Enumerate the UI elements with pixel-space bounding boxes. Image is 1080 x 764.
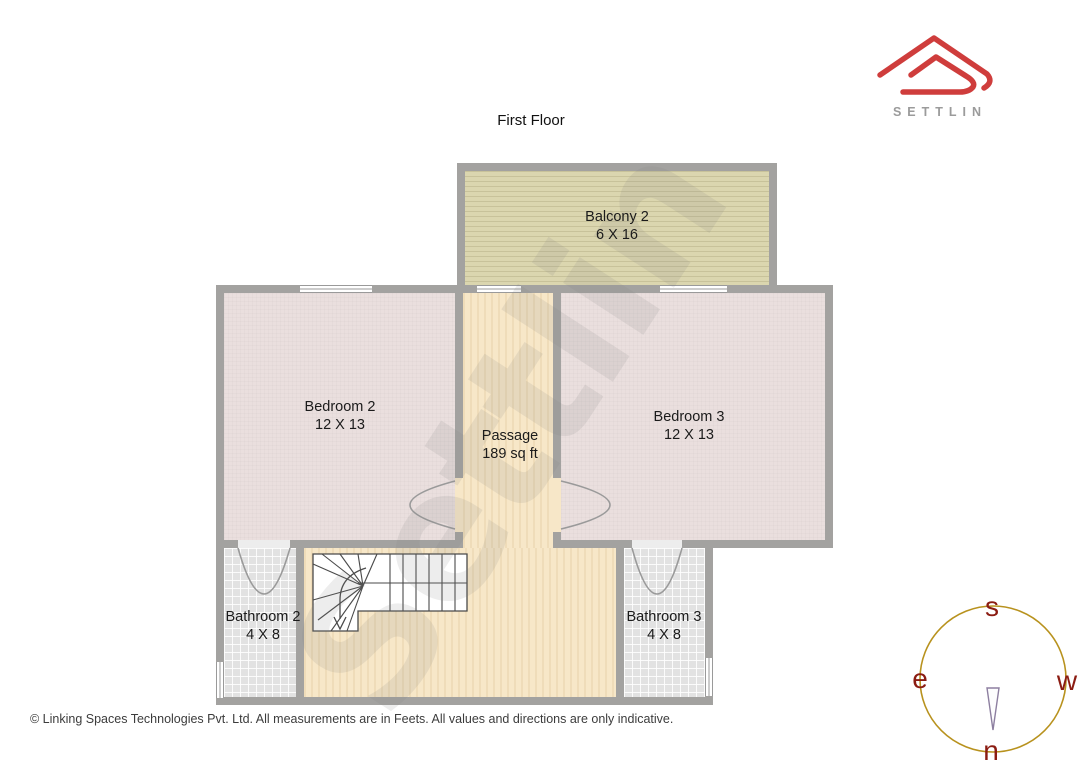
room-label-bathroom3: Bathroom 3 4 X 8 — [584, 609, 744, 644]
window-bedroom3-top — [660, 285, 727, 293]
room-label-bedroom2: Bedroom 2 12 X 13 — [260, 399, 420, 434]
wall-balcony-left — [457, 163, 465, 293]
wall-bottom — [216, 697, 713, 705]
wall-mid-right — [561, 540, 833, 548]
window-bedroom2-top — [300, 285, 372, 293]
window-bathroom3-right — [705, 658, 713, 696]
door-opening-bathroom3 — [632, 540, 682, 548]
room-passage-corridor — [463, 293, 553, 548]
room-label-balcony2: Balcony 2 6 X 16 — [537, 209, 697, 244]
room-dims: 6 X 16 — [537, 227, 697, 245]
compass-west-label: w — [1056, 665, 1078, 696]
room-name: Balcony 2 — [537, 209, 697, 227]
logo-brand-text: SETTLIN — [877, 105, 997, 119]
wall-balcony-right — [769, 163, 777, 293]
door-opening-bedroom2 — [455, 478, 463, 532]
room-name: Passage — [430, 428, 590, 446]
room-label-passage: Passage 189 sq ft — [430, 428, 590, 463]
room-label-bedroom3: Bedroom 3 12 X 13 — [609, 409, 769, 444]
room-dims: 4 X 8 — [584, 627, 744, 645]
floorplan-page: First Floor SETTLIN — [0, 0, 1080, 764]
room-label-bathroom2: Bathroom 2 4 X 8 — [183, 609, 343, 644]
room-name: Bedroom 3 — [609, 409, 769, 427]
wall-main-right — [825, 285, 833, 547]
room-dims: 12 X 13 — [609, 427, 769, 445]
wall-passage-left-stub — [455, 532, 463, 548]
door-opening-bedroom3 — [553, 478, 561, 532]
compass-east-label: e — [912, 663, 928, 694]
room-dims: 12 X 13 — [260, 417, 420, 435]
window-bathroom2-left — [216, 662, 224, 698]
compass: s e w n — [905, 588, 1080, 764]
room-name: Bathroom 2 — [183, 609, 343, 627]
room-name: Bathroom 3 — [584, 609, 744, 627]
compass-needle-icon — [987, 688, 999, 730]
wall-balcony-top — [457, 163, 777, 171]
wall-passage-right-stub — [553, 532, 561, 548]
room-dims: 189 sq ft — [430, 446, 590, 464]
page-title: First Floor — [431, 112, 631, 129]
compass-ring — [920, 606, 1066, 752]
door-opening-bathroom2 — [238, 540, 290, 548]
footer-disclaimer: © Linking Spaces Technologies Pvt. Ltd. … — [30, 712, 673, 726]
room-passage-lower — [304, 548, 616, 697]
compass-south-label: s — [985, 591, 999, 622]
window-passage-balcony — [477, 285, 521, 293]
room-name: Bedroom 2 — [260, 399, 420, 417]
settlin-roof-icon — [877, 30, 993, 96]
settlin-logo: SETTLIN — [877, 30, 997, 119]
compass-north-label: n — [983, 735, 999, 764]
room-dims: 4 X 8 — [183, 627, 343, 645]
